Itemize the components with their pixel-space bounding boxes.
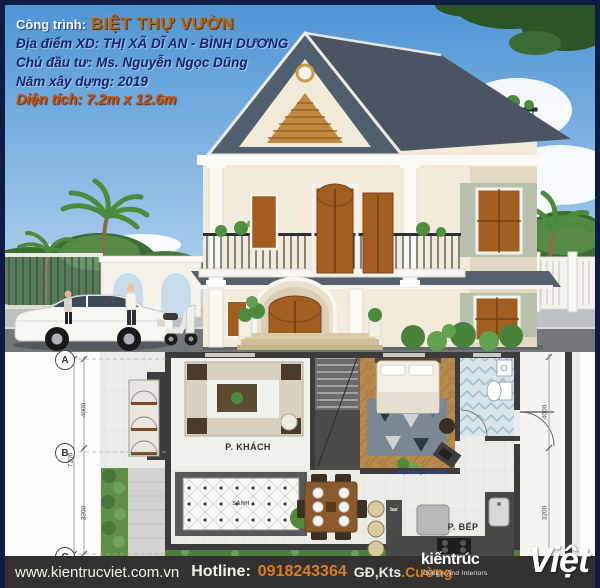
label-living-room: P. KHÁCH	[225, 442, 271, 452]
porch-arch-panel	[129, 372, 171, 460]
floorplan	[5, 352, 595, 556]
floorplan-illustration	[5, 352, 595, 556]
walkway	[128, 468, 166, 556]
logo-viet: Việt	[528, 539, 589, 581]
bathroom	[460, 358, 514, 436]
label-hall: SẢNH	[232, 501, 249, 507]
project-label: Công trình:	[16, 17, 86, 32]
person-2	[64, 291, 72, 325]
dim-left-7200: 7200	[68, 453, 75, 467]
website-text: www.kientrucviet.com.vn	[15, 564, 179, 581]
plan-note: xây tường cao 1600	[397, 470, 446, 476]
dim-right-3200: 3200	[542, 506, 549, 520]
logo-tagline: Design And Interiors	[423, 570, 488, 577]
poster: Công trình: BIỆT THỰ VƯỜN Địa điểm XD: T…	[0, 0, 600, 588]
gable-round-vent	[297, 65, 313, 81]
sofa-set	[185, 362, 303, 436]
project-area: Diện tích: 7.2m x 12.6m	[16, 91, 288, 110]
project-info-overlay: Công trình: BIỆT THỰ VƯỜN Địa điểm XD: T…	[16, 14, 288, 110]
dim-right-4000: 4000	[542, 405, 549, 419]
dim-left-4000: 4000	[81, 403, 88, 417]
garden-strip	[101, 468, 128, 556]
project-year: Năm xây dựng: 2019	[16, 72, 288, 91]
hotline-number: 0918243364	[258, 563, 347, 581]
kientrucviet-logo: kiếntrúc Design And Interiors Việt	[421, 547, 589, 587]
footer-bar: www.kientrucviet.com.vn Hotline: 0918243…	[5, 556, 595, 588]
architect-title: GĐ,Kts	[354, 564, 401, 580]
hotline-label: Hotline:	[191, 563, 251, 581]
cornice-upper	[197, 155, 545, 165]
label-kitchen: P. BẾP	[448, 522, 479, 532]
awning-fascia	[197, 285, 553, 289]
bedroom	[360, 355, 461, 472]
side-yard	[520, 352, 565, 556]
project-owner: Chủ đầu tư: Ms. Nguyễn Ngọc Dũng	[16, 53, 288, 72]
project-location: Địa điểm XD: THỊ XÃ DĨ AN - BÌNH DƯƠNG	[16, 34, 288, 53]
dining-set	[297, 474, 367, 540]
staircase	[315, 352, 360, 470]
dim-left-3200: 3200	[81, 506, 88, 520]
grid-letter-a: A	[61, 355, 68, 366]
project-name: BIỆT THỰ VƯỜN	[91, 14, 235, 33]
project-line: Công trình: BIỆT THỰ VƯỜN	[16, 14, 288, 34]
logo-wordmark: kiếntrúc	[421, 551, 479, 569]
label-bar: bar	[390, 507, 398, 513]
grid-bubble-a: A	[55, 350, 75, 370]
